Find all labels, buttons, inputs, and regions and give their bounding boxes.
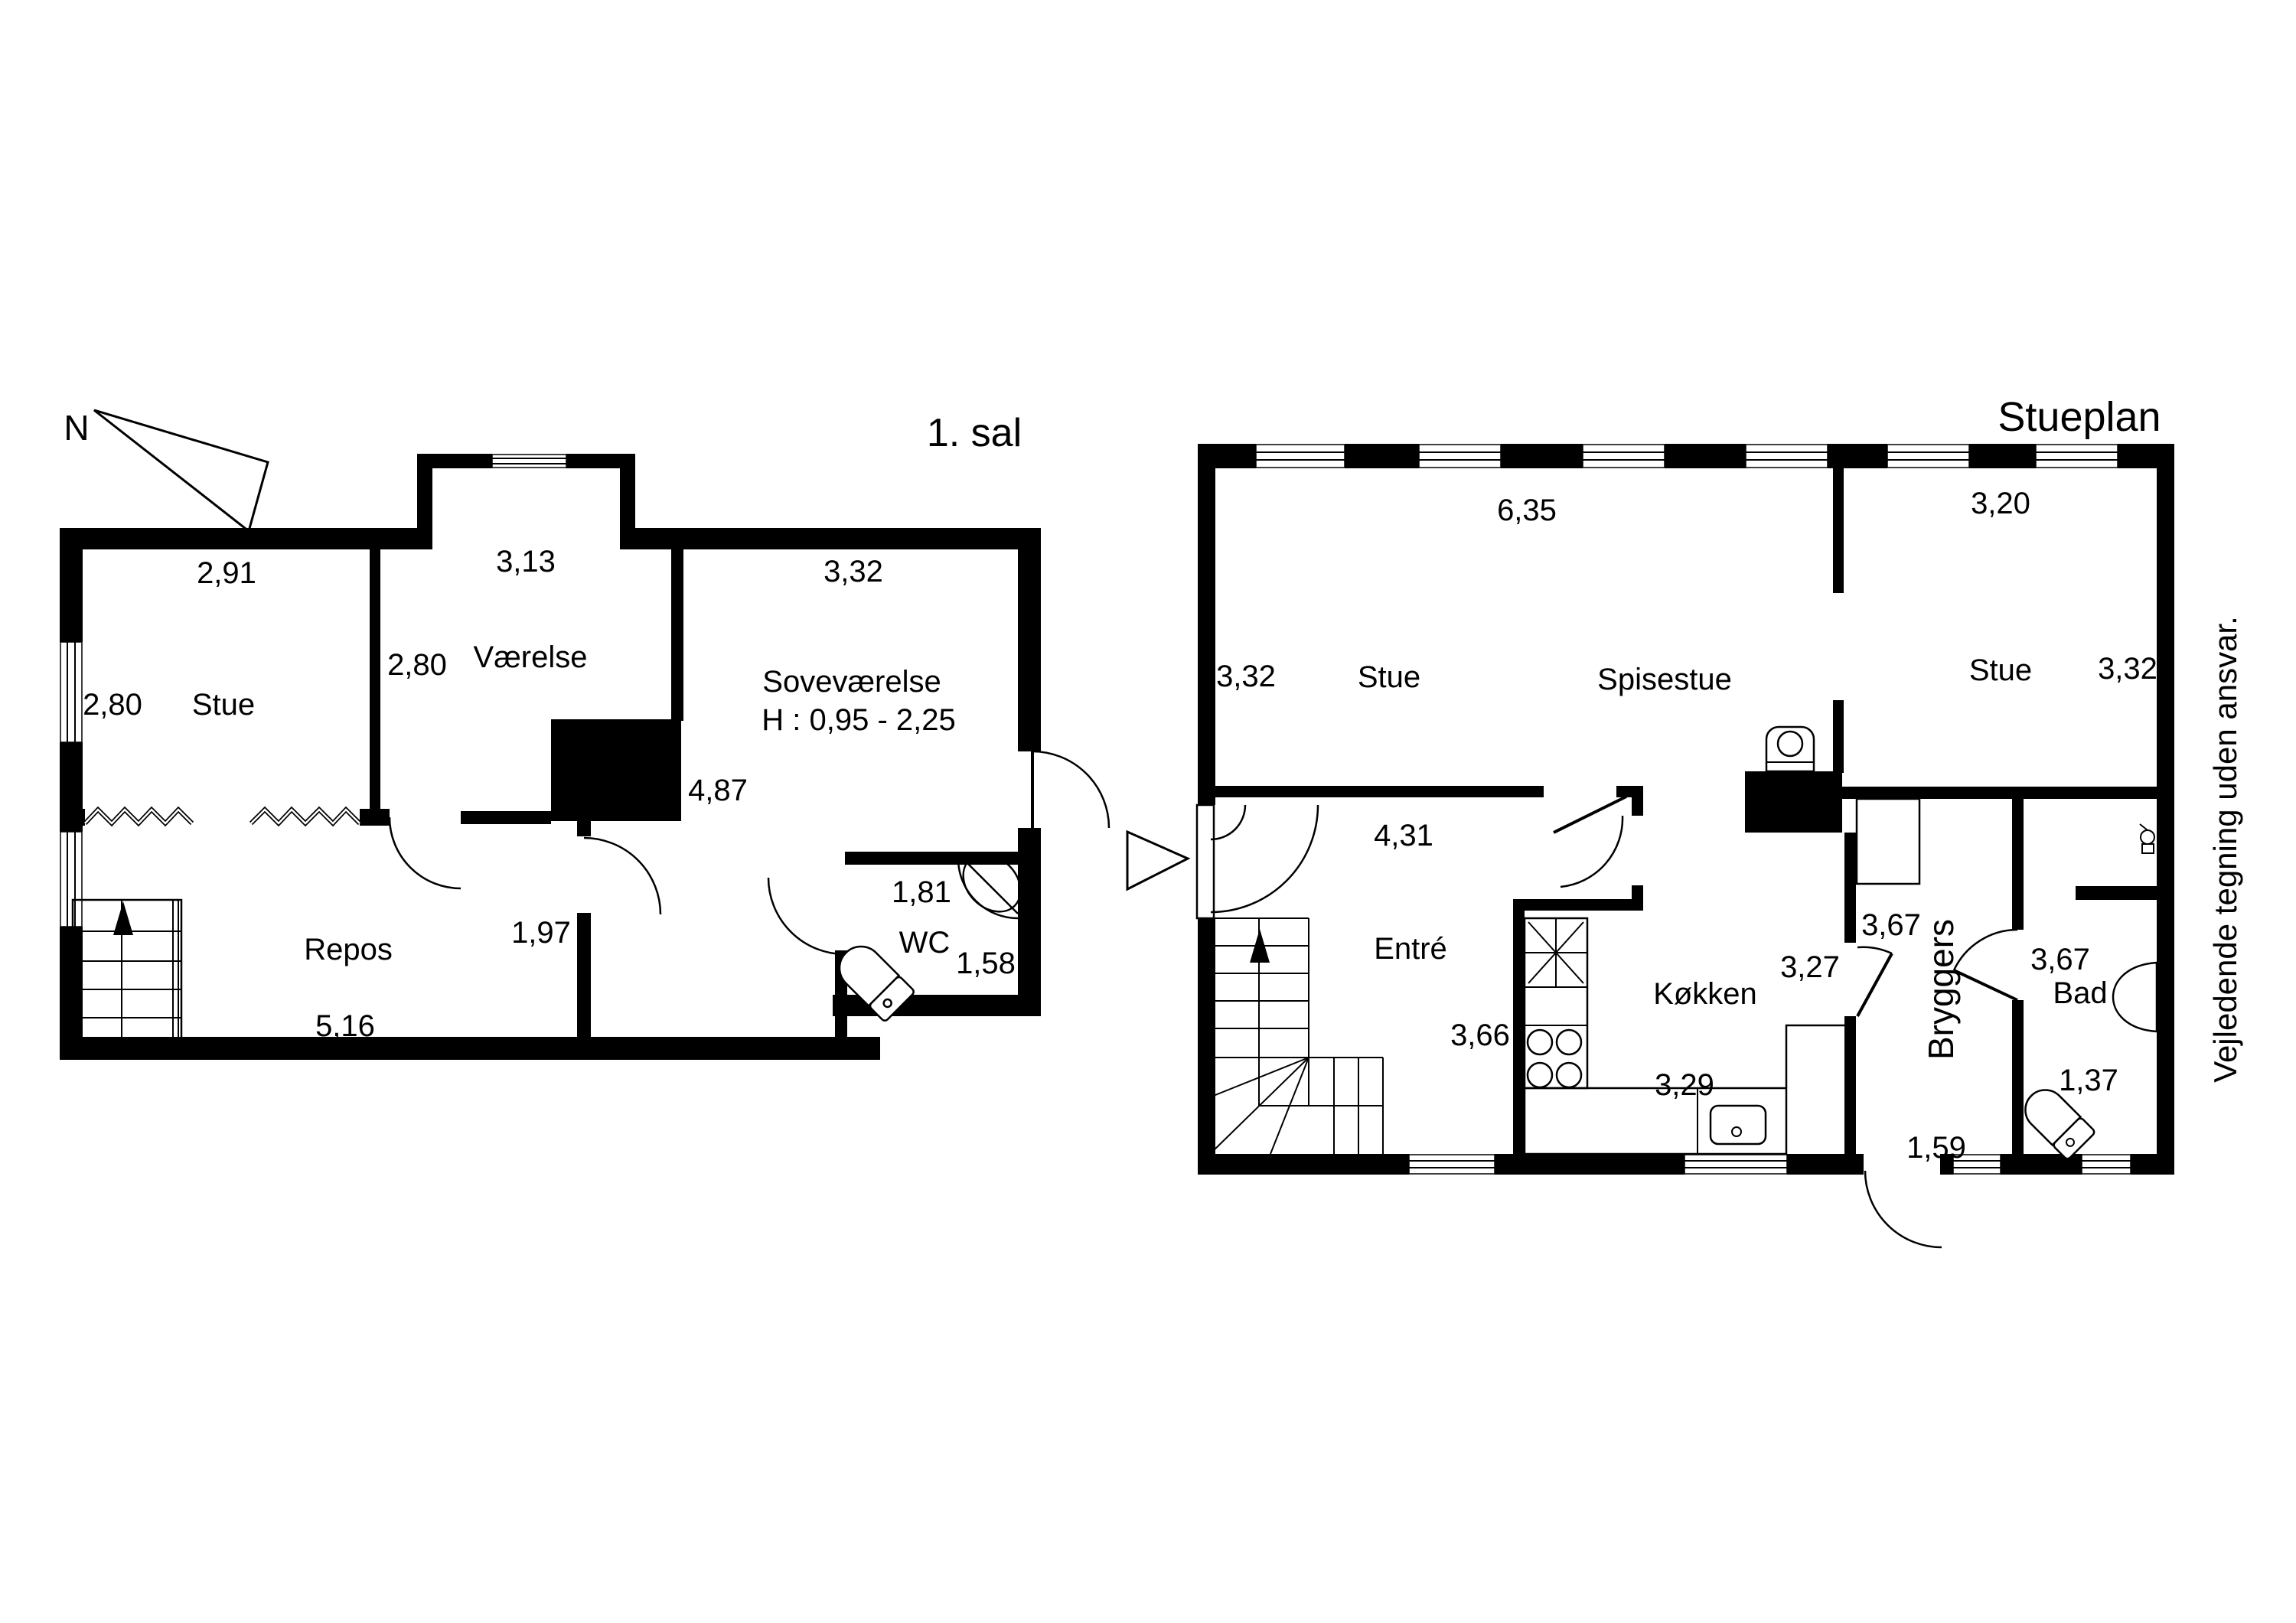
floor1-stairs [73, 900, 181, 1045]
dim: 3,32 [1216, 660, 1276, 693]
floor0-stairs [1210, 918, 1383, 1154]
door-arc [1954, 930, 2017, 970]
door-leaf [1554, 797, 1626, 833]
north-label: N [64, 408, 89, 448]
room-label: Værelse [474, 640, 588, 674]
dim: 6,35 [1497, 494, 1557, 527]
room-label: Repos [304, 933, 393, 966]
window [1887, 445, 1969, 468]
floor1-open-wall-zigzag [85, 810, 360, 823]
window [60, 832, 82, 927]
room-label: Entré [1374, 932, 1447, 966]
tap-icon [2140, 824, 2154, 853]
door-arc [390, 817, 461, 888]
door-arc [1032, 751, 1109, 828]
room-label: Bad [2053, 976, 2107, 1010]
door-arc [1211, 805, 1318, 912]
floor0-doors [1197, 797, 2017, 1247]
dim: 3,27 [1780, 950, 1840, 984]
dim: 4,87 [688, 774, 748, 807]
room-label: Spisestue [1597, 663, 1732, 696]
floor0-windows [1256, 445, 2131, 1174]
window [1256, 445, 1345, 468]
north-arrow-icon: N [64, 408, 268, 531]
dim: 1,37 [2059, 1064, 2118, 1097]
kitchen-sink-unit [1525, 918, 1587, 987]
dim: 5,16 [315, 1009, 375, 1043]
stairs-up-arrow [113, 901, 133, 935]
door-arc [1857, 947, 1892, 953]
counter-sink [1711, 1106, 1766, 1144]
hall-basin [1766, 727, 1814, 771]
floorplan-page: N 1. sal [0, 0, 2296, 1623]
dim: 3,13 [496, 545, 556, 578]
floorplan-drawing: N 1. sal [0, 0, 2296, 1623]
door-arc [1211, 805, 1245, 839]
view-direction-pointer [1127, 832, 1188, 889]
door-leaf [1857, 953, 1892, 1016]
bad-basin [2113, 963, 2157, 1031]
door-arc [1865, 1171, 1942, 1247]
window [1684, 1155, 1787, 1174]
dim: 1,58 [956, 947, 1016, 980]
window [2082, 1155, 2131, 1174]
chimney-block [551, 719, 681, 821]
dim: 3,67 [1861, 908, 1921, 942]
window [60, 642, 82, 742]
room-label: Stue [1969, 653, 2032, 687]
dim: 2,91 [197, 556, 256, 590]
floor1-plan: 1. sal [60, 411, 1109, 1060]
floor0-walls [1198, 444, 2174, 1175]
window [1583, 445, 1665, 468]
dim: 3,20 [1971, 487, 2030, 520]
door-leaf [1954, 970, 2017, 1000]
front-door-leaf [1197, 805, 1214, 918]
dim: 3,29 [1655, 1068, 1714, 1102]
dim: 1,59 [1906, 1131, 1966, 1165]
room-label: Stue [192, 688, 255, 722]
dim: 3,32 [823, 555, 883, 588]
door-arc [584, 838, 660, 914]
dim: 3,32 [2098, 652, 2157, 686]
window [1409, 1155, 1495, 1174]
bryggers-cabinet [1857, 799, 1919, 884]
door-arc [768, 878, 845, 954]
door-arc [1561, 816, 1623, 887]
dim: 1,81 [892, 875, 951, 909]
disclaimer-text: Vejledende tegning uden ansvar. [2207, 616, 2243, 1083]
chimney-block [1745, 771, 1842, 833]
window [1746, 445, 1828, 468]
floor0-plan: Stueplan [1197, 394, 2174, 1247]
dim: 2,80 [387, 648, 447, 682]
floor1-title: 1. sal [927, 411, 1022, 455]
room-label: Stue [1358, 660, 1420, 694]
dim: 3,67 [2030, 943, 2090, 976]
counter-edge [1786, 1025, 1844, 1088]
room-label: Bryggers [1921, 919, 1961, 1060]
room-label: Soveværelse [762, 665, 941, 699]
room-label: Køkken [1653, 977, 1757, 1011]
room-label: WC [899, 926, 951, 960]
floor0-title: Stueplan [1998, 394, 2161, 440]
window [2036, 445, 2118, 468]
dim: 2,80 [83, 688, 142, 722]
dim: 1,97 [511, 916, 571, 950]
window [1419, 445, 1501, 468]
window [492, 455, 566, 468]
dim: 3,66 [1450, 1018, 1510, 1052]
stove-burners [1528, 1030, 1581, 1087]
room-note: H : 0,95 - 2,25 [762, 703, 955, 737]
dim: 4,31 [1374, 819, 1433, 852]
